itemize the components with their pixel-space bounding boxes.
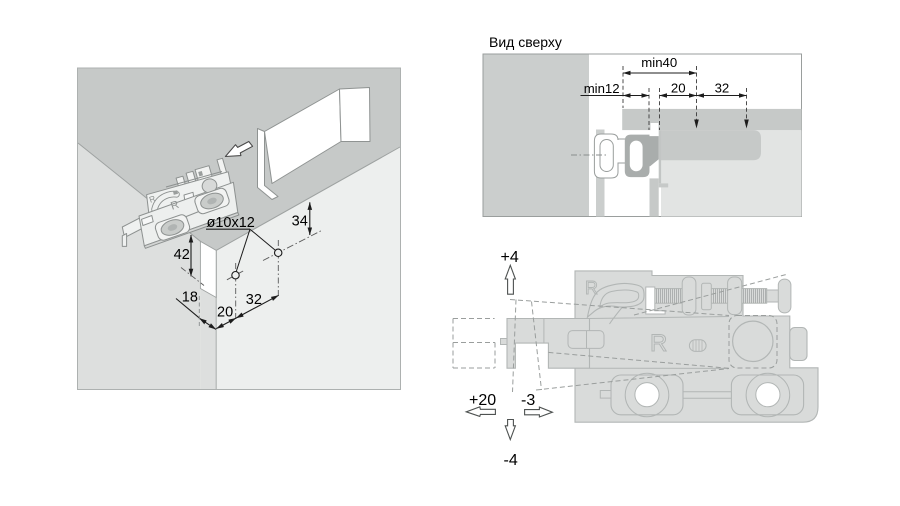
svg-text:+20: +20 [469, 392, 496, 409]
svg-text:34: 34 [292, 214, 308, 230]
svg-text:20: 20 [217, 305, 233, 321]
svg-text:18: 18 [182, 290, 198, 306]
svg-text:20: 20 [671, 81, 686, 96]
svg-text:R: R [585, 278, 598, 298]
svg-text:ø10x12: ø10x12 [207, 215, 255, 231]
svg-text:+4: +4 [501, 249, 519, 266]
svg-text:min12: min12 [584, 81, 620, 96]
svg-text:32: 32 [246, 292, 262, 308]
svg-text:min40: min40 [641, 55, 677, 70]
svg-text:R: R [650, 330, 667, 357]
svg-text:32: 32 [715, 81, 730, 96]
svg-text:Вид сверху: Вид сверху [489, 34, 562, 50]
svg-text:-3: -3 [521, 392, 535, 409]
svg-text:-4: -4 [504, 452, 518, 469]
svg-text:42: 42 [174, 247, 190, 263]
